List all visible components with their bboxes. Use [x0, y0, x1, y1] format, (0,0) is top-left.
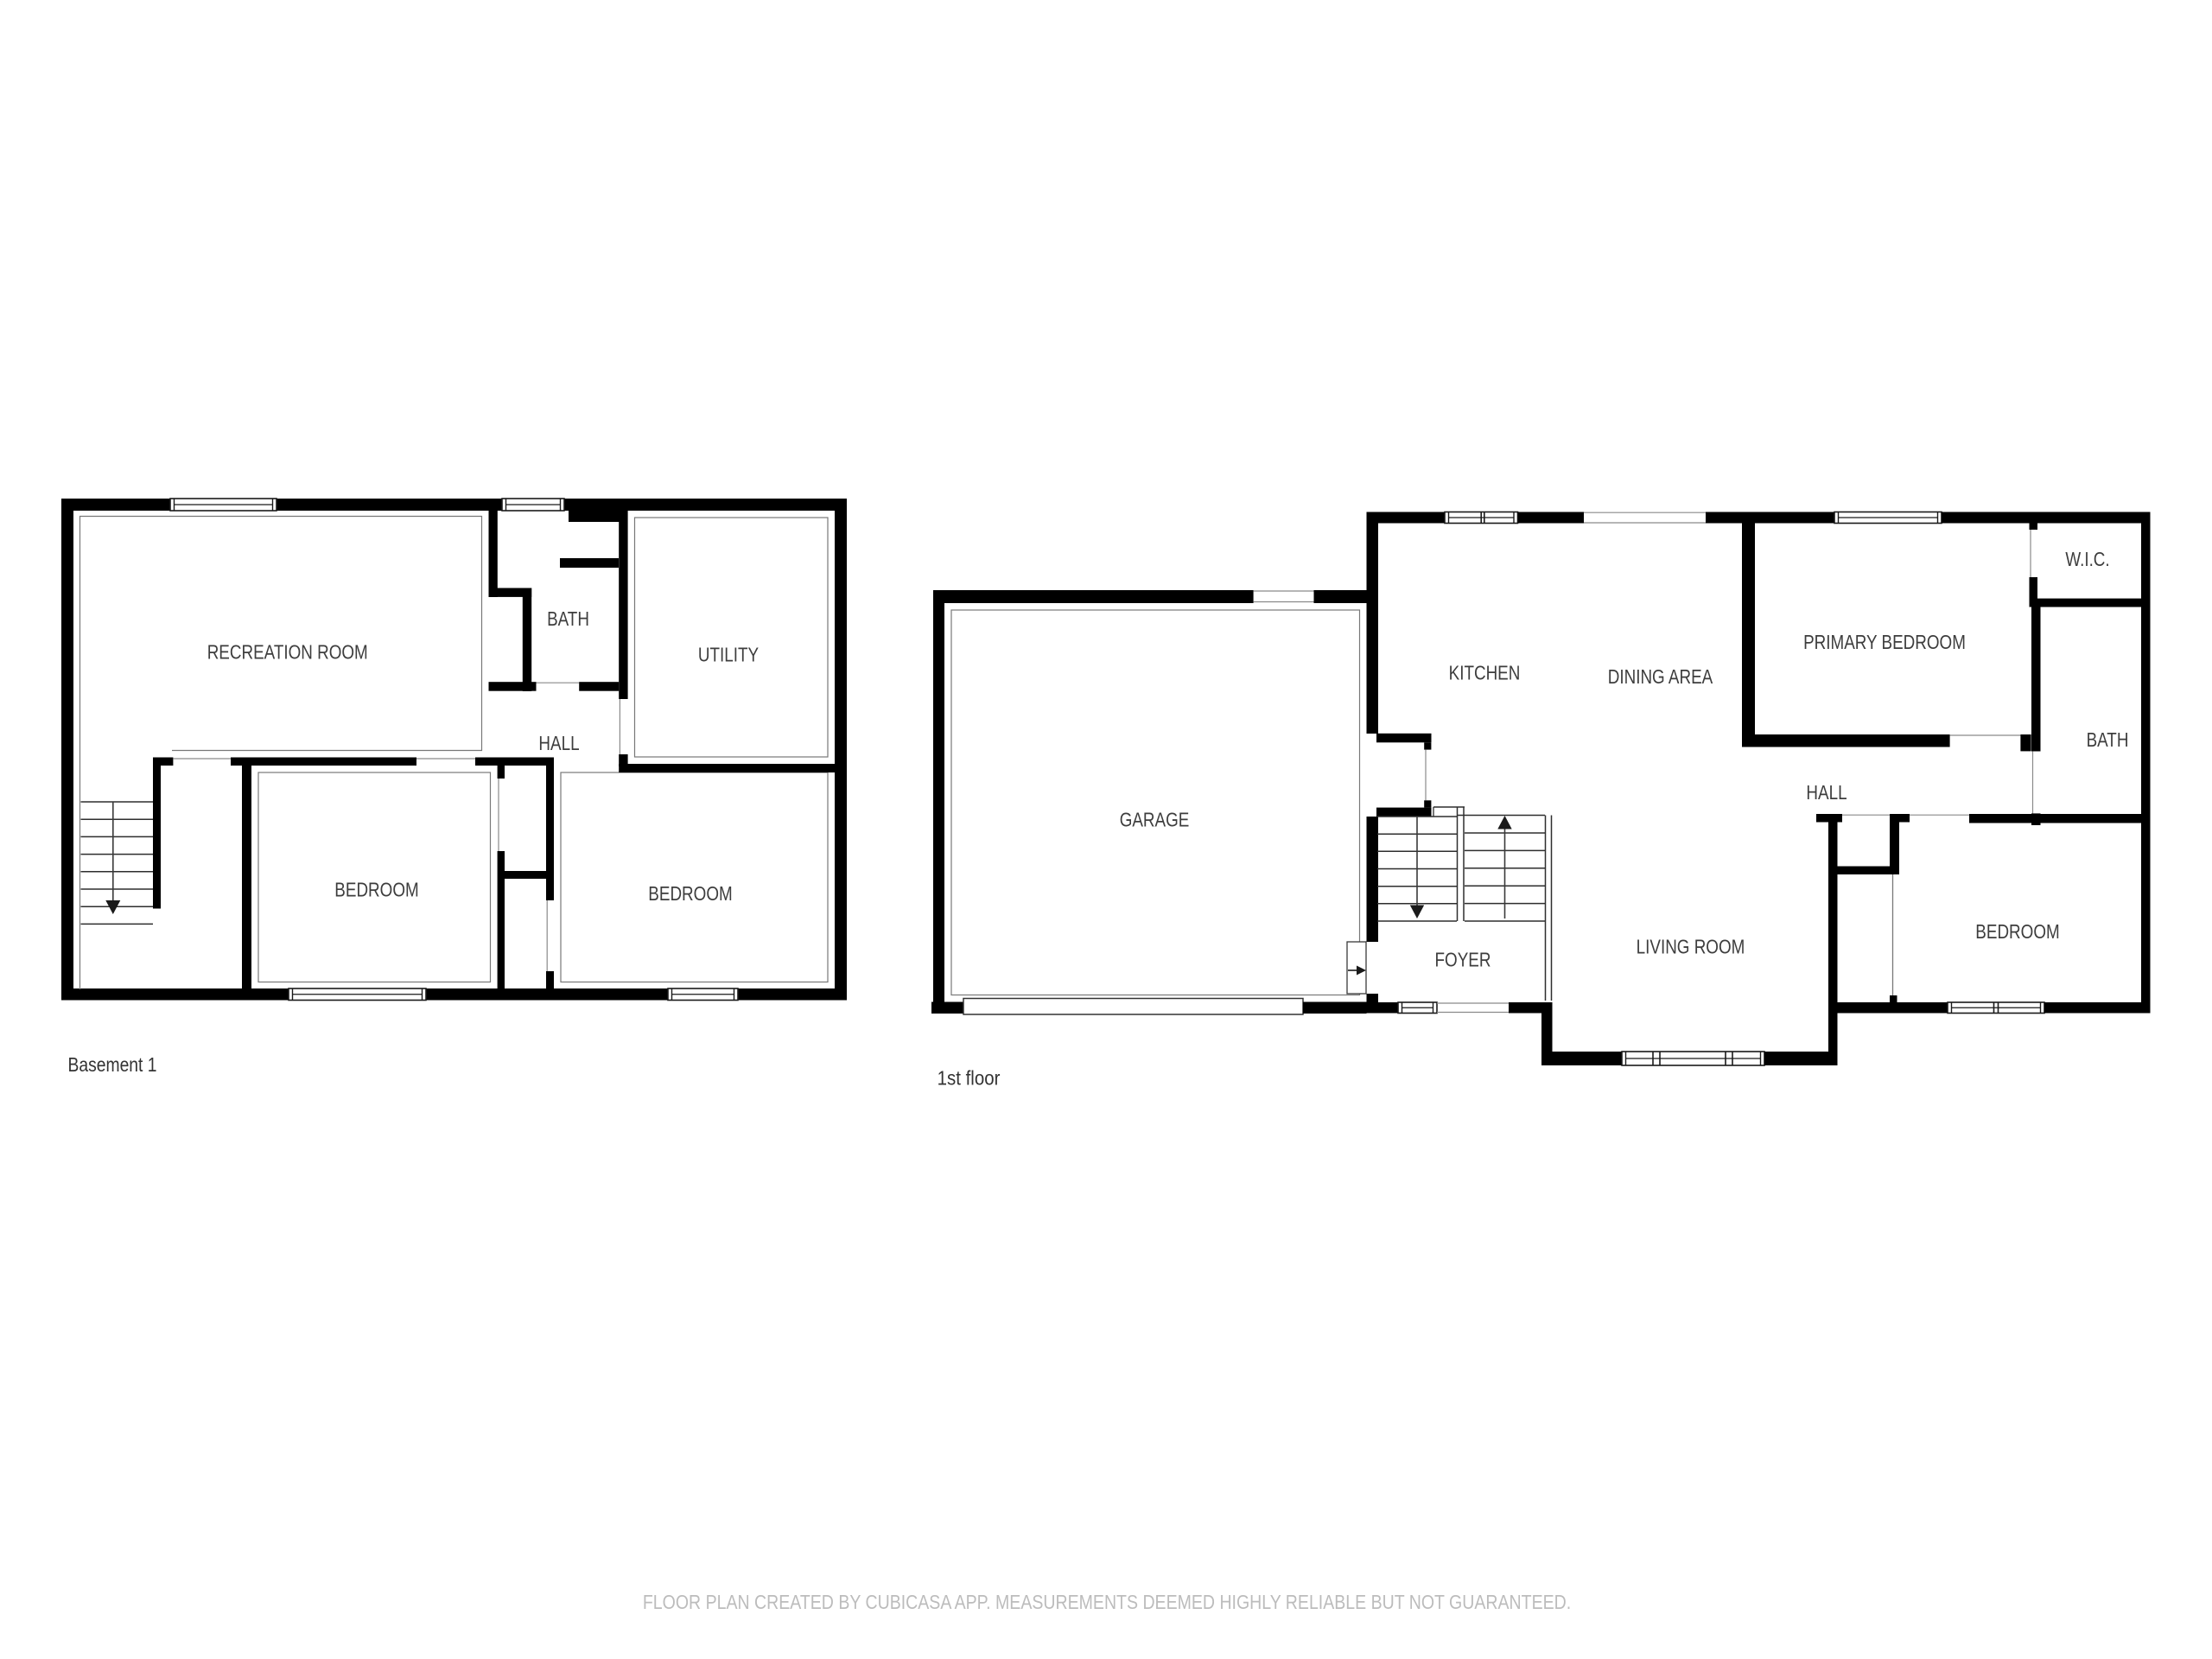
- svg-text:BEDROOM: BEDROOM: [334, 880, 418, 901]
- svg-text:KITCHEN: KITCHEN: [1449, 663, 1521, 684]
- svg-text:BATH: BATH: [2087, 729, 2129, 751]
- svg-text:BEDROOM: BEDROOM: [1975, 921, 2059, 943]
- svg-text:BATH: BATH: [547, 608, 589, 630]
- svg-text:GARAGE: GARAGE: [1120, 810, 1190, 831]
- svg-text:DINING AREA: DINING AREA: [1608, 666, 1713, 688]
- svg-text:W.I.C.: W.I.C.: [2065, 549, 2109, 570]
- svg-text:HALL: HALL: [1806, 782, 1847, 804]
- svg-text:HALL: HALL: [538, 733, 579, 754]
- svg-text:1st floor: 1st floor: [938, 1067, 1001, 1090]
- svg-text:FLOOR PLAN CREATED BY CUBICASA: FLOOR PLAN CREATED BY CUBICASA APP. MEAS…: [643, 1592, 1571, 1614]
- svg-text:Basement 1: Basement 1: [68, 1054, 157, 1076]
- svg-text:LIVING ROOM: LIVING ROOM: [1637, 937, 1745, 958]
- svg-text:FOYER: FOYER: [1435, 950, 1491, 971]
- svg-text:RECREATION ROOM: RECREATION ROOM: [207, 642, 368, 664]
- svg-text:UTILITY: UTILITY: [698, 645, 759, 666]
- svg-text:PRIMARY BEDROOM: PRIMARY BEDROOM: [1803, 632, 1966, 653]
- svg-text:BEDROOM: BEDROOM: [648, 883, 732, 905]
